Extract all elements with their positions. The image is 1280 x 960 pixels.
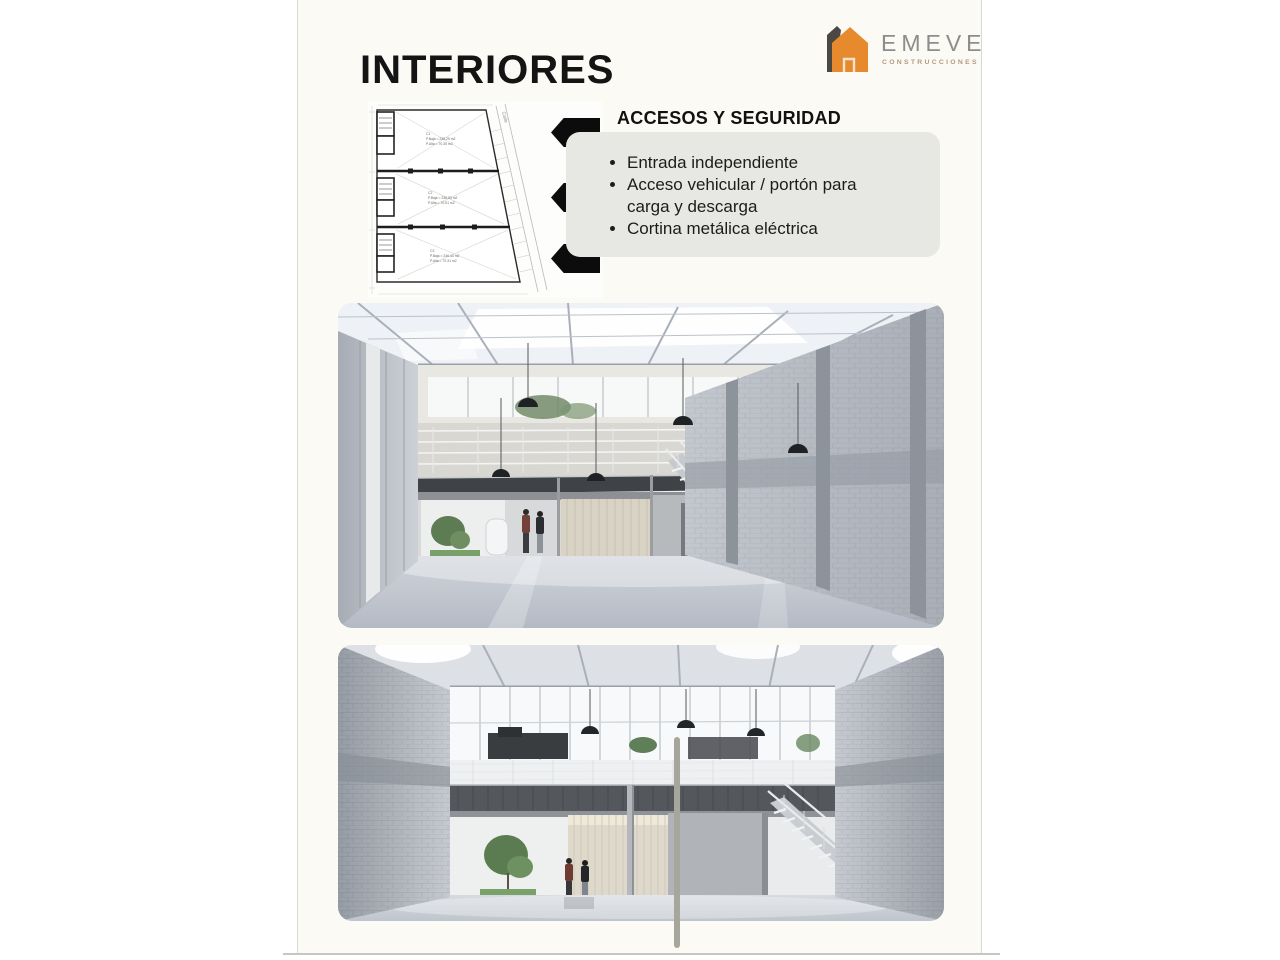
- unit-2-area2: P.Alta = 70.51 m2: [428, 201, 455, 205]
- unit-1-area1: P.Baja = 238.29 m2: [426, 137, 456, 141]
- feature-item: Acceso vehicular / portón para carga y d…: [627, 174, 889, 218]
- unit-3-id: C3: [430, 249, 434, 253]
- scrollbar-thumb[interactable]: [674, 737, 680, 948]
- feature-list: Entrada independiente Acceso vehicular /…: [627, 152, 900, 240]
- feature-item: Cortina metálica eléctrica: [627, 218, 889, 240]
- interior-render-bottom: [338, 645, 944, 921]
- logo-tagline-text: CONSTRUCCIONES: [882, 59, 979, 66]
- unit-3-area2: P.Alta = 70.31 m2: [430, 259, 457, 263]
- unit-2-area1: P.Baja = 236.53 m2: [428, 196, 458, 200]
- unit-1-id: C1: [426, 132, 430, 136]
- interior-render-top: [338, 303, 944, 628]
- slide-page: INTERIORES EMEVE CONSTRUCCIONES: [297, 0, 982, 953]
- feature-item: Entrada independiente: [627, 152, 889, 174]
- company-logo: EMEVE CONSTRUCCIONES: [825, 20, 977, 76]
- house-logo-icon: [825, 22, 871, 74]
- viewport-bottom-edge: [283, 953, 1000, 955]
- feature-box: Entrada independiente Acceso vehicular /…: [566, 132, 940, 257]
- unit-2-id: C2: [428, 191, 432, 195]
- section-heading: ACCESOS Y SEGURIDAD: [617, 108, 841, 129]
- page-title: INTERIORES: [360, 48, 614, 93]
- logo-brand-text: EMEVE: [881, 30, 987, 57]
- unit-1-area2: P.Alta = 70.35 m2: [426, 142, 453, 146]
- document-canvas: INTERIORES EMEVE CONSTRUCCIONES: [0, 0, 1280, 960]
- unit-3-area1: P.Baja = 246.44 m2: [430, 254, 460, 258]
